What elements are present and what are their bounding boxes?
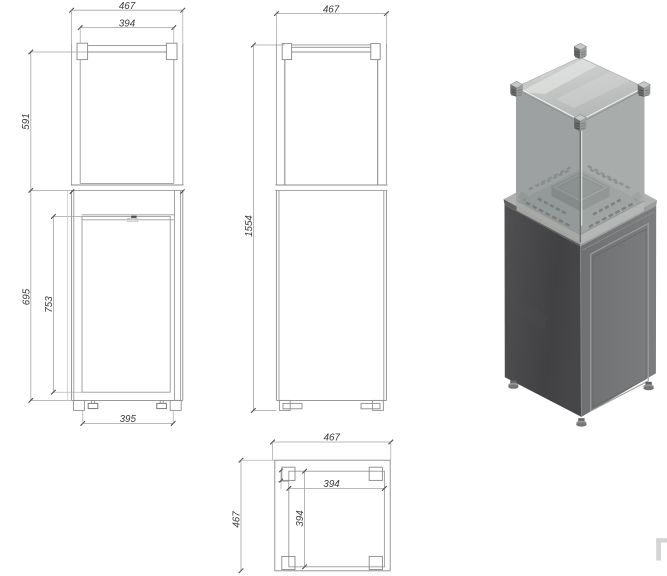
svg-text:753: 753 bbox=[44, 296, 55, 313]
svg-text:467: 467 bbox=[323, 4, 340, 15]
svg-text:1554: 1554 bbox=[244, 215, 255, 237]
svg-text:695: 695 bbox=[22, 288, 33, 305]
svg-text:394: 394 bbox=[295, 510, 306, 527]
svg-text:591: 591 bbox=[21, 113, 32, 129]
svg-text:467: 467 bbox=[231, 511, 242, 528]
svg-text:467: 467 bbox=[324, 433, 341, 444]
svg-text:394: 394 bbox=[119, 19, 136, 30]
svg-text:394: 394 bbox=[323, 479, 340, 490]
svg-text:467: 467 bbox=[119, 1, 136, 12]
svg-text:395: 395 bbox=[120, 414, 137, 425]
